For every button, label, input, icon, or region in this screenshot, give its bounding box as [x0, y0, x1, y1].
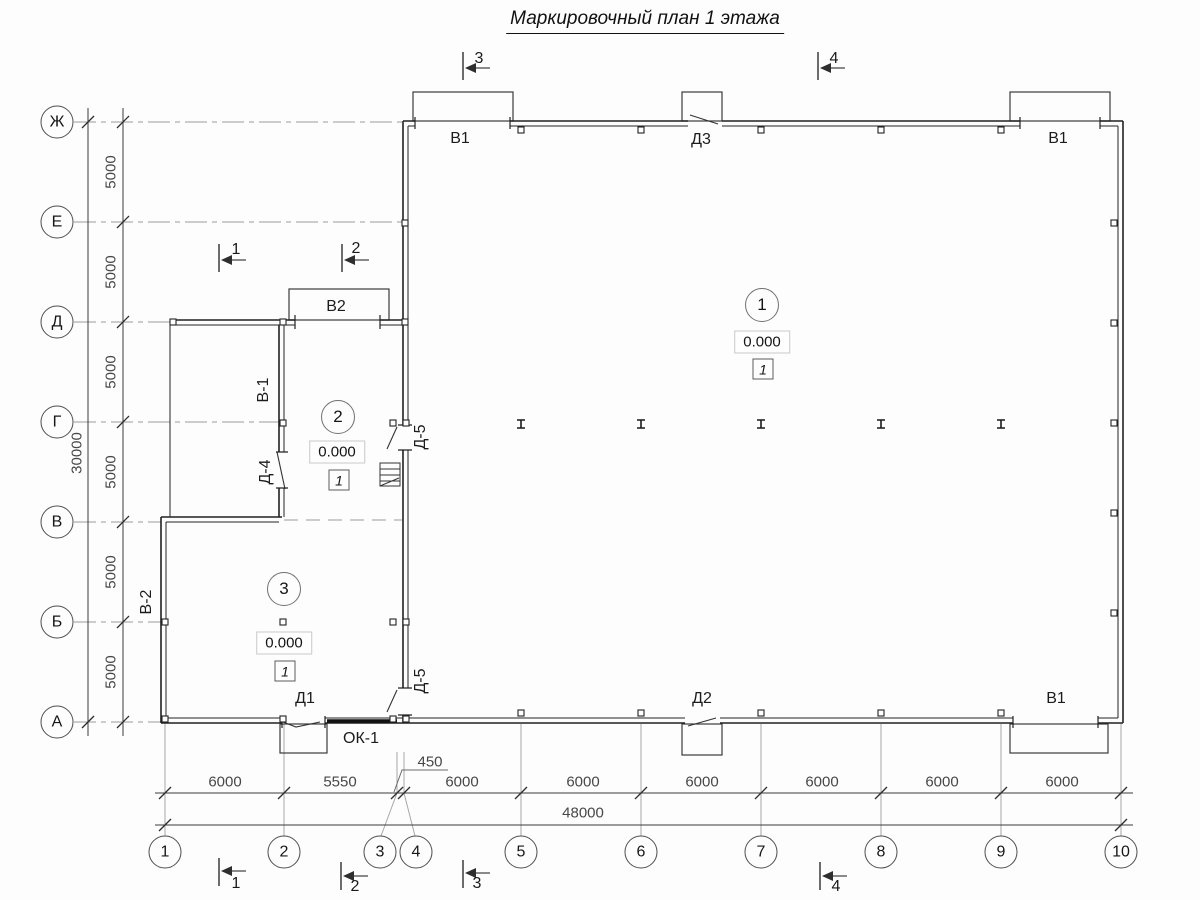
axis-col-label: 8: [877, 843, 886, 861]
door-label-d-4: Д-4: [258, 459, 274, 484]
room-number-label: 2: [333, 407, 342, 427]
axis-row-label: Г: [53, 413, 62, 431]
gate-label-v1-bottom: В1: [1046, 691, 1066, 707]
dim-left-total: 30000: [70, 432, 85, 474]
axis-col-8: 8: [865, 836, 898, 869]
gate-label-v2: В2: [326, 299, 346, 315]
section-mark-2-bottom: 2: [351, 879, 360, 895]
extension-lines: [165, 724, 1121, 836]
axis-row-label: А: [52, 713, 63, 731]
room-1-finish-type: 1: [753, 359, 774, 380]
axis-col-label: 10: [1112, 843, 1130, 861]
axis-col-label: 5: [517, 843, 526, 861]
room-3-number: 3: [267, 572, 301, 606]
axis-row-e: Е: [41, 206, 74, 239]
gate-label-v1-top-left: В1: [450, 131, 470, 147]
axis-row-label: Ж: [50, 113, 65, 131]
axis-col-1: 1: [149, 836, 182, 869]
section-mark-1-bottom: 1: [232, 876, 241, 892]
axis-col-label: 4: [412, 843, 421, 861]
section-mark-2-mid: 2: [352, 241, 361, 257]
drawing-title: Маркировочный план 1 этажа: [506, 8, 784, 34]
dim-bottom-7: 6000: [805, 775, 838, 790]
room-1-number: 1: [745, 288, 779, 322]
axis-col-label: 3: [376, 843, 385, 861]
dim-left-2: 5000: [104, 255, 119, 288]
door-label-d1: Д1: [295, 691, 315, 707]
axis-row-v: В: [41, 506, 74, 539]
dim-bottom-8: 6000: [925, 775, 958, 790]
door-label-d3: Д3: [691, 132, 711, 148]
room-3-finish-type: 1: [275, 661, 296, 682]
opening-jambs: [276, 117, 1100, 728]
dim-bottom-1: 6000: [208, 775, 241, 790]
section-mark-4-top: 4: [830, 51, 839, 67]
axis-col-3: 3: [364, 836, 397, 869]
axis-row-label: Д: [52, 313, 63, 331]
axis-col-label: 6: [637, 843, 646, 861]
section-marks: [219, 52, 847, 890]
axis-col-label: 7: [757, 843, 766, 861]
dim-bottom-total: 48000: [562, 806, 604, 821]
room-number-label: 1: [757, 295, 766, 315]
axis-row-d: Д: [41, 306, 74, 339]
stairs: [380, 463, 400, 486]
axis-col-10: 10: [1105, 836, 1138, 869]
dim-bottom-3: 450: [417, 755, 442, 770]
window-label-ok1: ОК-1: [343, 731, 379, 747]
room-3-elevation: 0.000: [256, 632, 312, 655]
room-2-number: 2: [321, 400, 355, 434]
axis-row-label: Б: [52, 613, 63, 631]
dim-bottom-9: 6000: [1045, 775, 1078, 790]
axis-col-label: 1: [161, 843, 170, 861]
dim-left-4: 5000: [104, 455, 119, 488]
axis-col-label: 2: [280, 843, 289, 861]
gate-label-v1-top-right: В1: [1048, 131, 1068, 147]
axis-col-label: 9: [997, 843, 1006, 861]
dim-left-3: 5000: [104, 355, 119, 388]
dim-left-6: 5000: [104, 655, 119, 688]
door-label-d2: Д2: [692, 691, 712, 707]
axis-row-a: А: [41, 706, 74, 739]
axis-col-4: 4: [400, 836, 433, 869]
wall-label-v-1: В-1: [256, 378, 272, 403]
section-mark-4-bottom: 4: [832, 879, 841, 895]
floor-plan-page: Маркировочный план 1 этажа Ж Е Д Г В Б А…: [0, 0, 1200, 900]
axis-col-2: 2: [268, 836, 301, 869]
section-mark-3-top: 3: [475, 51, 484, 67]
room-2-elevation: 0.000: [309, 441, 365, 464]
axis-col-6: 6: [625, 836, 658, 869]
axis-row-b: Б: [41, 606, 74, 639]
axis-col-9: 9: [985, 836, 1018, 869]
dimension-lines: [88, 108, 1133, 825]
steel-columns: [517, 420, 1005, 428]
dim-bottom-6: 6000: [685, 775, 718, 790]
section-mark-1-mid: 1: [232, 242, 241, 258]
door-label-d-5-lower: Д-5: [413, 668, 429, 693]
floor-plan-drawing: [0, 0, 1200, 900]
axis-col-7: 7: [745, 836, 778, 869]
room-2-finish-type: 1: [329, 470, 350, 491]
section-mark-3-bottom: 3: [473, 876, 482, 892]
dim-left-5: 5000: [104, 555, 119, 588]
door-label-d-5-upper: Д-5: [413, 424, 429, 449]
axis-row-zh: Ж: [41, 106, 74, 139]
axis-row-label: Е: [52, 213, 63, 231]
dim-bottom-4: 6000: [445, 775, 478, 790]
dim-bottom-5: 6000: [566, 775, 599, 790]
room-number-label: 3: [279, 579, 288, 599]
dim-left-1: 5000: [104, 155, 119, 188]
room-1-elevation: 0.000: [734, 331, 790, 354]
axis-row-label: В: [52, 513, 63, 531]
wall-label-v-2: В-2: [139, 590, 155, 615]
axis-col-5: 5: [505, 836, 538, 869]
dim-bottom-2: 5550: [323, 775, 356, 790]
